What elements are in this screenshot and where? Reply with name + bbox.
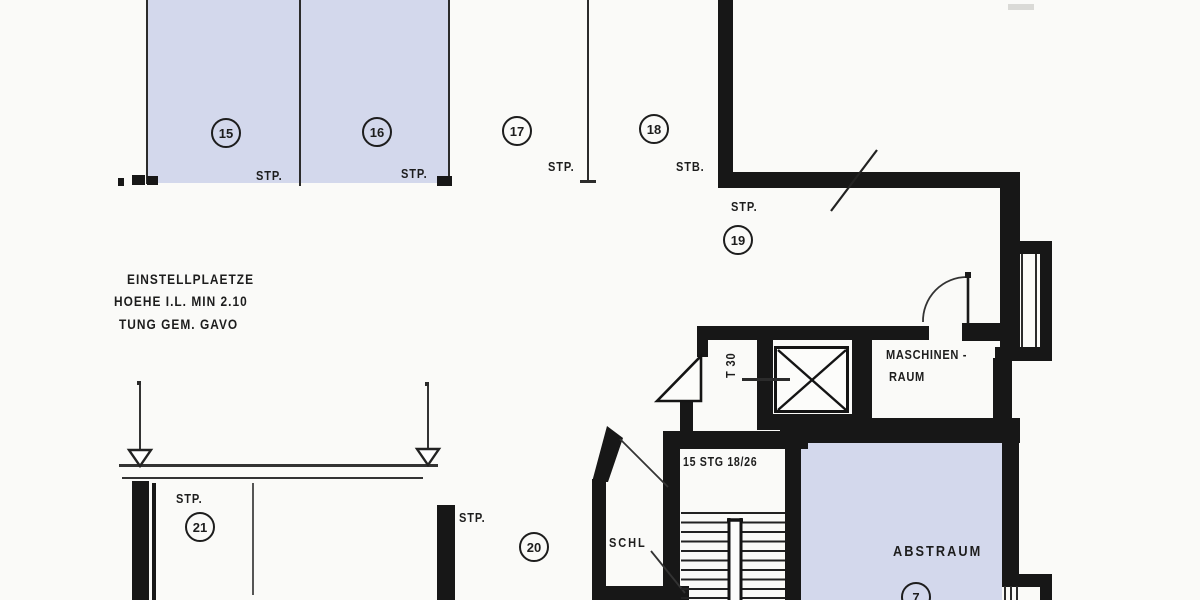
- stp-label-20: STP.: [459, 510, 486, 525]
- space-16-number-circle: 16: [362, 117, 392, 147]
- parking-wall-line: [152, 483, 156, 600]
- t30-door-wedge: [657, 356, 701, 401]
- abstraum-label: ABSTRAUM: [893, 543, 982, 560]
- wall-schl-bottom: [592, 586, 689, 600]
- door-hinge-dot: [965, 272, 971, 278]
- schl-door-swing: [620, 439, 668, 487]
- space-17-number-circle: 17: [502, 116, 532, 146]
- wall-maschinenraum-top-right: [962, 323, 1020, 341]
- scan-smudge: [1008, 4, 1034, 10]
- wall-stairwell-right: [785, 430, 801, 600]
- space-15-number-circle: 15: [211, 118, 241, 148]
- schl-vestibule-label: SCHL: [609, 535, 647, 550]
- wall-end-marker: [118, 178, 124, 186]
- wall-abstraum-right: [1002, 441, 1019, 577]
- wall-bay-right: [1040, 250, 1052, 353]
- stair-count-label: 15 STG 18/26: [683, 455, 757, 469]
- wall-top-right-horizontal: [718, 172, 1015, 188]
- annotation-line-3: TUNG GEM. GAVO: [119, 316, 238, 332]
- parking-wall-bar: [132, 481, 149, 600]
- parking-space-15-area: [148, 0, 299, 183]
- wall-t30-jamb: [697, 326, 708, 357]
- parking-divider-15-16: [299, 0, 301, 186]
- bottom-window-line: [1016, 586, 1018, 600]
- fire-door-t30-label: T 30: [723, 352, 738, 378]
- parking-divider-21: [252, 483, 254, 595]
- parking-right-edge-16: [448, 0, 451, 186]
- annotation-line-2: HOEHE I.L. MIN 2.10: [114, 293, 248, 309]
- parking-wall-bar: [437, 505, 455, 600]
- wall-end-marker: [147, 176, 158, 185]
- wall-schl-slant: [592, 426, 623, 482]
- wall-abstraum-bottom-corner: [1040, 585, 1052, 600]
- dimension-arrow-shaft: [427, 384, 429, 462]
- wall-top-right-vertical: [718, 0, 733, 187]
- space-21-number-circle: 21: [185, 512, 215, 542]
- maschinenraum-label-line1: MASCHINEN -: [886, 347, 967, 362]
- stp-label-19: STP.: [731, 199, 758, 214]
- bottom-window-line: [1004, 586, 1006, 600]
- stp-label-17: STP.: [548, 159, 575, 174]
- space-20-number-circle: 20: [519, 532, 549, 562]
- wall-right-mid-vertical: [993, 358, 1012, 422]
- parking-divider-17-18-foot: [580, 180, 596, 183]
- stb-label-18: STB.: [676, 159, 705, 174]
- wall-end-marker: [437, 176, 452, 186]
- bottom-window-line: [1010, 586, 1012, 600]
- wall-corridor-top: [697, 326, 929, 340]
- wall-abstraum-top: [780, 418, 1020, 443]
- dimension-line-upper: [119, 464, 438, 467]
- maschinenraum-label-line2: RAUM: [889, 369, 925, 384]
- stp-label-15: STP.: [256, 168, 283, 183]
- elevator-leader-line: [742, 378, 790, 381]
- dimension-arrow-shaft: [139, 383, 141, 463]
- bay-window-line: [1021, 254, 1023, 347]
- abstraum-room-area: [800, 441, 1002, 600]
- stp-label-16: STP.: [401, 166, 428, 181]
- maschinenraum-door-arc: [923, 277, 967, 322]
- parking-left-edge-line: [146, 0, 149, 184]
- stair-treads: [681, 513, 785, 598]
- parking-divider-17-18: [587, 0, 589, 181]
- floor-plan: EINSTELLPLAETZE HOEHE I.L. MIN 2.10 TUNG…: [0, 0, 1200, 600]
- wall-schl-left-vertical: [592, 479, 606, 596]
- parking-space-16-area: [301, 0, 448, 183]
- space-19-number-circle: 19: [723, 225, 753, 255]
- stair-stringer: [728, 518, 742, 600]
- dimension-shaft-dot: [137, 381, 141, 385]
- dimension-line-lower: [122, 477, 423, 479]
- wall-end-marker: [132, 175, 145, 185]
- wall-stairwell-left: [663, 440, 680, 600]
- space-18-number-circle: 18: [639, 114, 669, 144]
- dimension-shaft-dot: [425, 382, 429, 386]
- annotation-line-1: EINSTELLPLAETZE: [127, 271, 254, 287]
- stp-label-21: STP.: [176, 491, 203, 506]
- bay-window-line: [1035, 254, 1037, 347]
